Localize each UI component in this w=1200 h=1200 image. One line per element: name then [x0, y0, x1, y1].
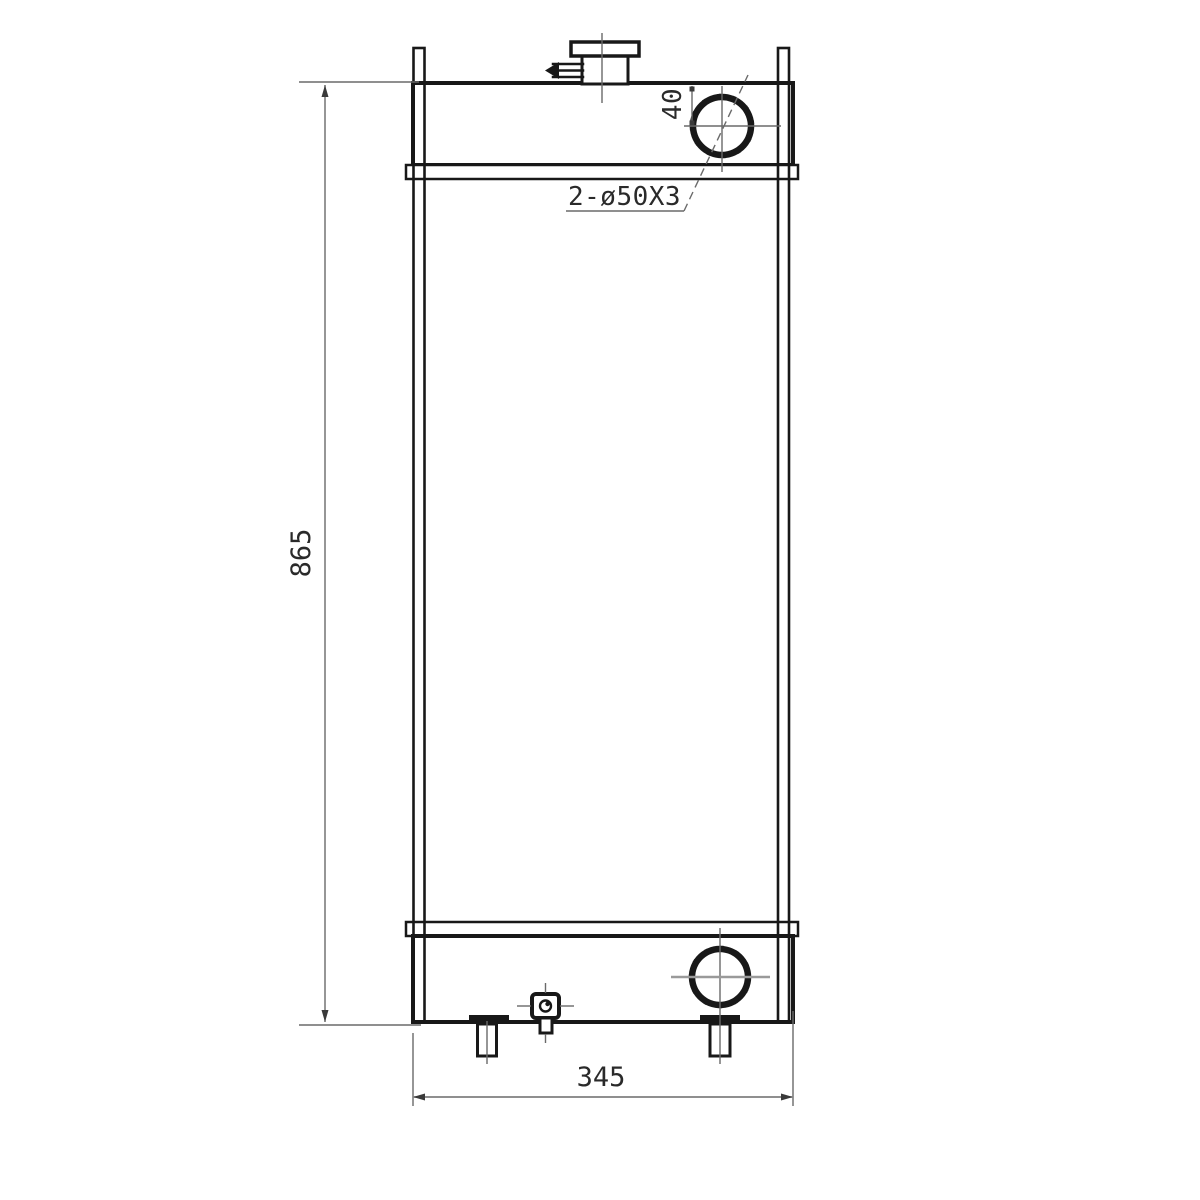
- lower-header-plate: [406, 922, 798, 936]
- pipe-offset-label: 40: [658, 88, 688, 120]
- radiator-technical-drawing: 865 345 40 2-ø50X3: [0, 0, 1200, 1200]
- pipe-offset-tick-top: [690, 87, 695, 92]
- width-arrow-right: [781, 1094, 793, 1101]
- drain-plug: [532, 994, 559, 1033]
- pipe-offset-tick-bottom: [690, 121, 695, 126]
- left-mounting-pin: [469, 1015, 509, 1056]
- right-side-bracket: [778, 48, 789, 1022]
- filler-neck: [582, 55, 628, 84]
- upper-header-plate: [406, 165, 798, 179]
- height-arrow-up: [322, 85, 329, 97]
- width-dimension: 345: [413, 1011, 793, 1106]
- filler-cap: [571, 42, 639, 56]
- width-arrow-left: [413, 1094, 425, 1101]
- drawing-canvas: 865 345 40 2-ø50X3: [0, 0, 1200, 1200]
- height-dimension-label: 865: [286, 529, 317, 578]
- height-arrow-down: [322, 1010, 329, 1022]
- overflow-tube: [545, 62, 583, 79]
- drain-plug-valve-dot: [545, 1002, 549, 1006]
- drain-plug-square: [532, 994, 559, 1018]
- height-dimension: 865: [286, 82, 421, 1025]
- width-dimension-label: 345: [577, 1062, 626, 1093]
- drain-plug-stem: [540, 1018, 552, 1033]
- left-side-bracket: [414, 48, 425, 1022]
- pipe-spec-label: 2-ø50X3: [568, 182, 681, 212]
